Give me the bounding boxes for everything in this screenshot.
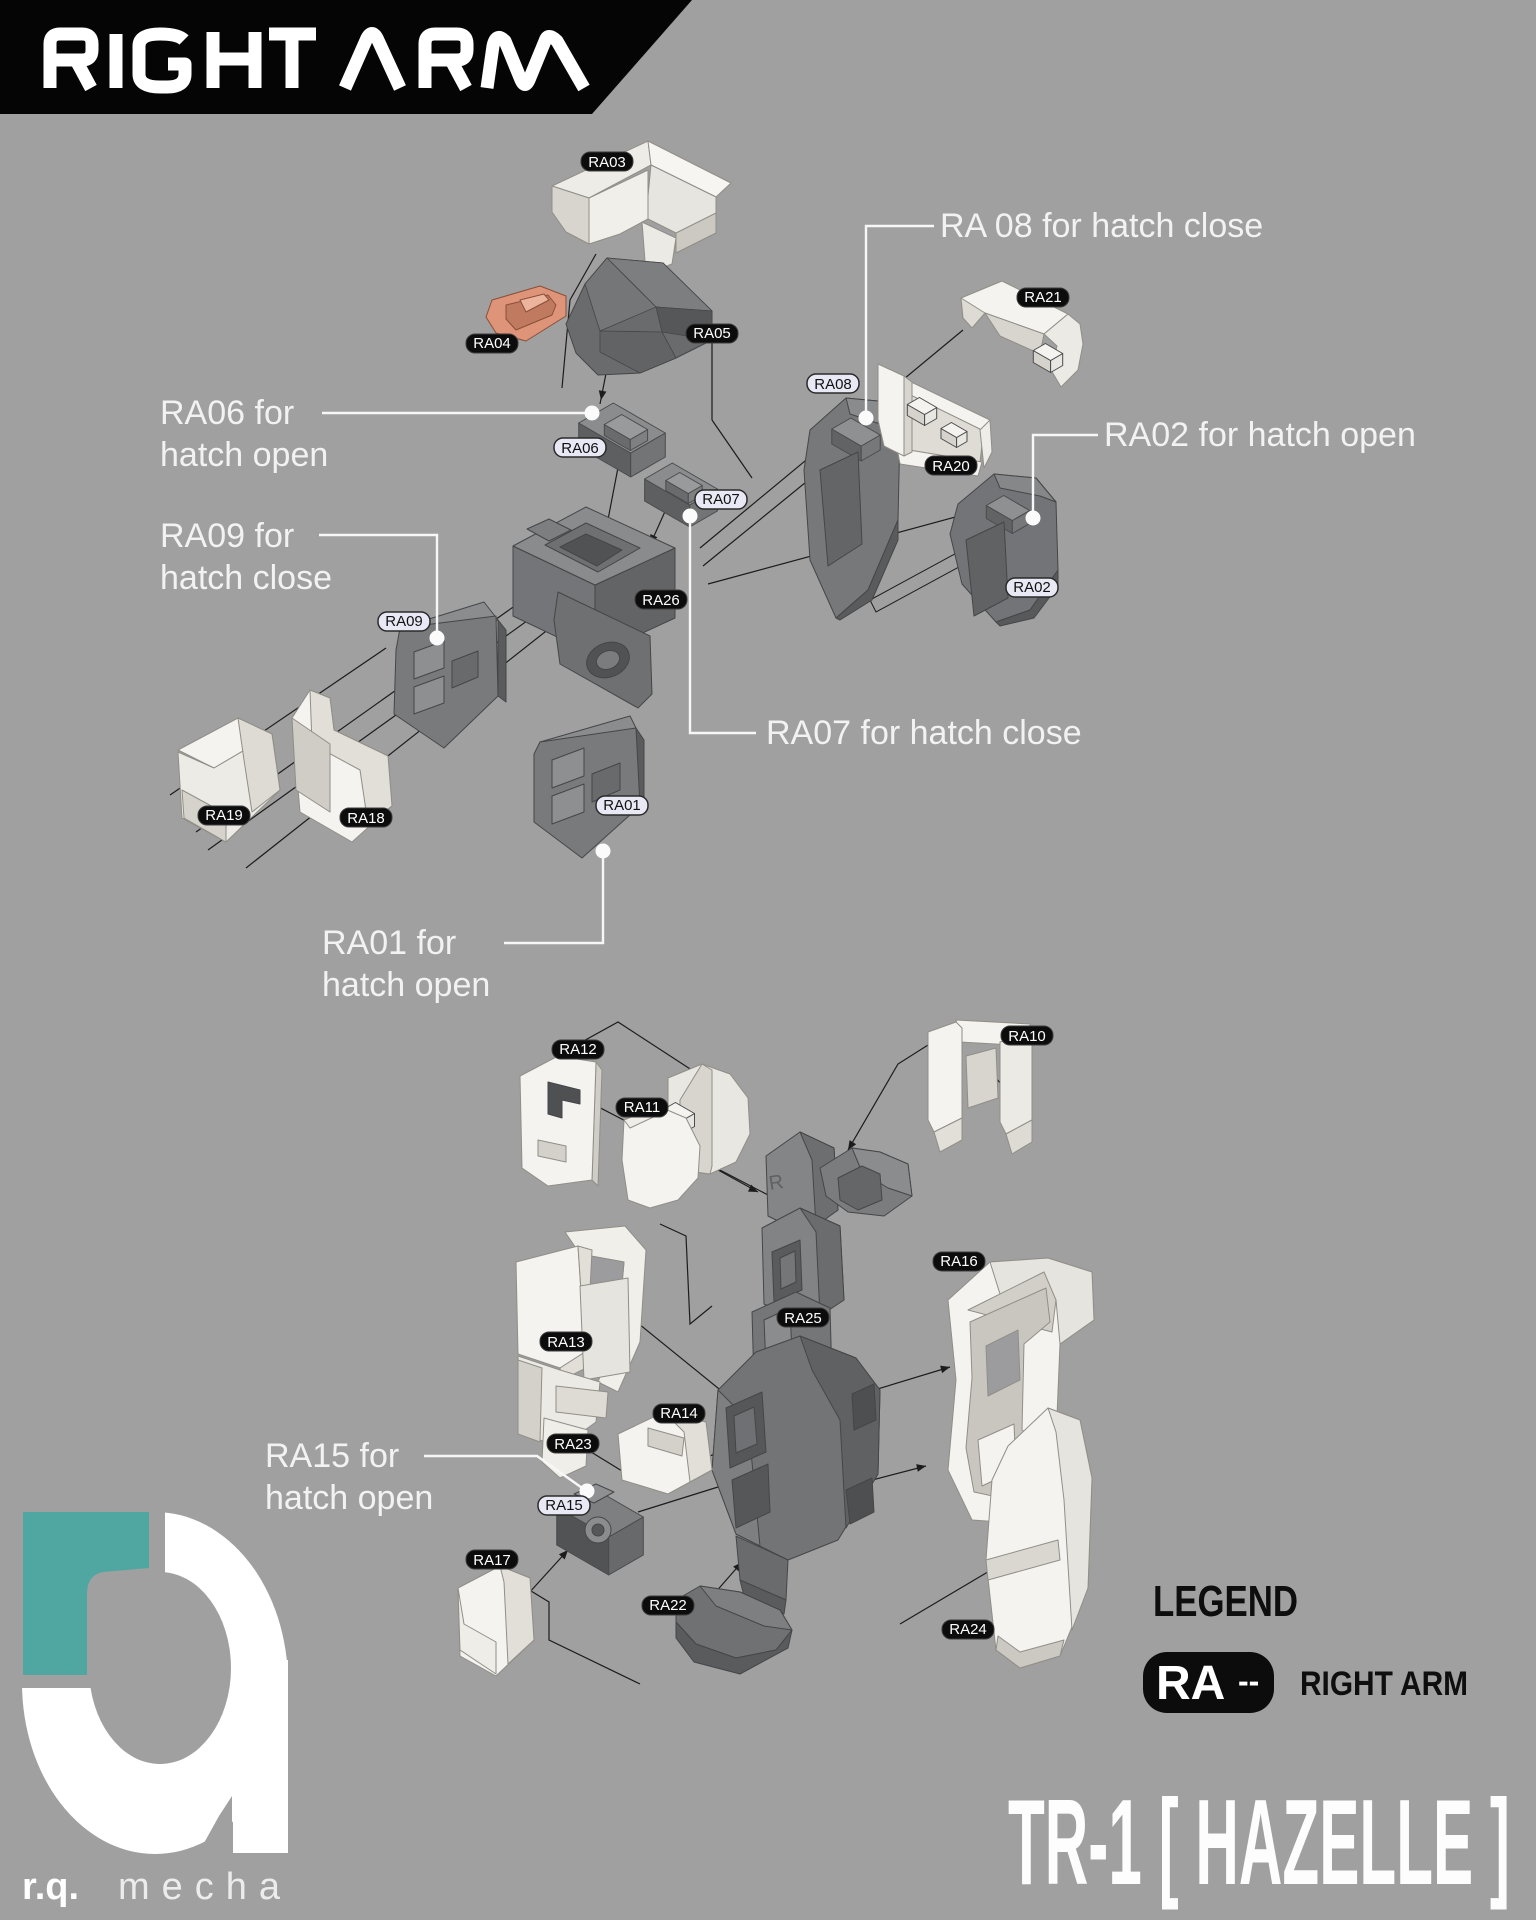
svg-text:RA15: RA15	[545, 1497, 583, 1514]
svg-text:RA04: RA04	[473, 335, 511, 352]
svg-text:RA08: RA08	[814, 376, 852, 393]
svg-text:RA18: RA18	[347, 810, 385, 827]
svg-text:RA24: RA24	[949, 1621, 987, 1638]
svg-text:RA23: RA23	[554, 1436, 592, 1453]
svg-text:RA11: RA11	[624, 1099, 660, 1116]
svg-text:r.q.: r.q.	[22, 1866, 79, 1908]
svg-text:RA06: RA06	[561, 440, 599, 457]
svg-text:hatch open: hatch open	[265, 1479, 433, 1517]
svg-text:RA22: RA22	[649, 1597, 687, 1614]
svg-text:RA20: RA20	[932, 458, 970, 475]
svg-text:hatch close: hatch close	[160, 559, 332, 597]
svg-text:LEGEND: LEGEND	[1153, 1577, 1298, 1626]
svg-text:RA 08 for hatch close: RA 08 for hatch close	[940, 207, 1263, 245]
svg-text:RA14: RA14	[660, 1405, 698, 1422]
svg-text:RA01 for: RA01 for	[322, 924, 456, 962]
svg-text:RA21: RA21	[1024, 289, 1062, 306]
svg-text:mecha: mecha	[118, 1866, 292, 1908]
svg-text:--: --	[1238, 1663, 1259, 1699]
svg-text:RA: RA	[1156, 1657, 1225, 1710]
svg-text:RA09 for: RA09 for	[160, 517, 294, 555]
svg-text:TR-1 [ HAZELLE ]: TR-1 [ HAZELLE ]	[1008, 1774, 1510, 1910]
svg-text:hatch open: hatch open	[322, 966, 490, 1004]
svg-text:RA03: RA03	[588, 154, 626, 171]
svg-text:RA02 for hatch open: RA02 for hatch open	[1104, 416, 1416, 454]
svg-text:RA09: RA09	[385, 613, 423, 630]
svg-text:RA16: RA16	[940, 1253, 978, 1270]
svg-text:RA01: RA01	[603, 797, 641, 814]
svg-text:RA26: RA26	[642, 592, 680, 609]
svg-text:RA06 for: RA06 for	[160, 394, 294, 432]
svg-text:RA10: RA10	[1008, 1028, 1046, 1045]
svg-text:RIGHT ARM: RIGHT ARM	[1300, 1665, 1468, 1703]
svg-text:RA12: RA12	[559, 1041, 597, 1058]
svg-text:RA15 for: RA15 for	[265, 1437, 399, 1475]
svg-text:RA25: RA25	[784, 1310, 822, 1327]
svg-text:RA07: RA07	[702, 491, 740, 508]
svg-text:RA05: RA05	[693, 325, 731, 342]
svg-text:RA02: RA02	[1013, 579, 1051, 596]
svg-text:hatch open: hatch open	[160, 436, 328, 474]
svg-text:RA19: RA19	[205, 807, 243, 824]
svg-text:RA13: RA13	[547, 1334, 585, 1351]
svg-text:RA17: RA17	[473, 1552, 511, 1569]
svg-text:RA07 for hatch close: RA07 for hatch close	[766, 714, 1082, 752]
